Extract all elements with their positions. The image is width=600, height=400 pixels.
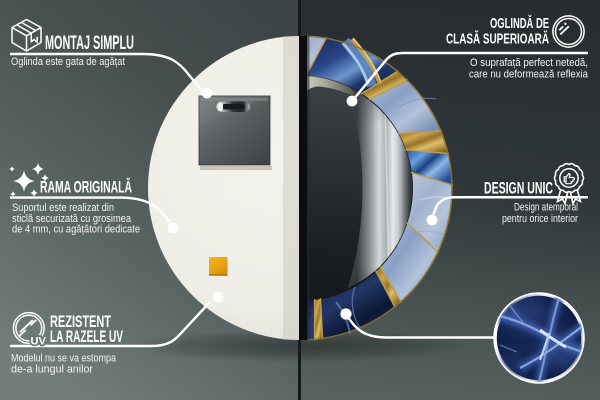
svg-text:O suprafață perfect netedă,: O suprafață perfect netedă,	[470, 57, 588, 69]
svg-text:de 4 mm, cu agățători dedicate: de 4 mm, cu agățători dedicate	[12, 224, 140, 236]
svg-text:RAMA ORIGINALĂ: RAMA ORIGINALĂ	[40, 178, 132, 197]
svg-text:UV: UV	[31, 336, 47, 348]
svg-text:LA RAZELE UV: LA RAZELE UV	[50, 327, 123, 346]
svg-text:CLASĂ SUPERIOARĂ: CLASĂ SUPERIOARĂ	[446, 31, 549, 48]
svg-text:Oglinda este gata de agățat: Oglinda este gata de agățat	[11, 56, 126, 68]
svg-text:OGLINDĂ DE: OGLINDĂ DE	[490, 15, 549, 32]
svg-text:DESIGN UNIC: DESIGN UNIC	[484, 180, 553, 198]
svg-text:de-a lungul anilor: de-a lungul anilor	[11, 364, 93, 376]
svg-text:pentru orice interior: pentru orice interior	[502, 213, 578, 225]
svg-text:care nu deformează reflexia: care nu deformează reflexia	[469, 69, 588, 81]
svg-text:Design atemporal: Design atemporal	[514, 202, 578, 214]
svg-text:MONTAJ SIMPLU: MONTAJ SIMPLU	[45, 33, 134, 54]
